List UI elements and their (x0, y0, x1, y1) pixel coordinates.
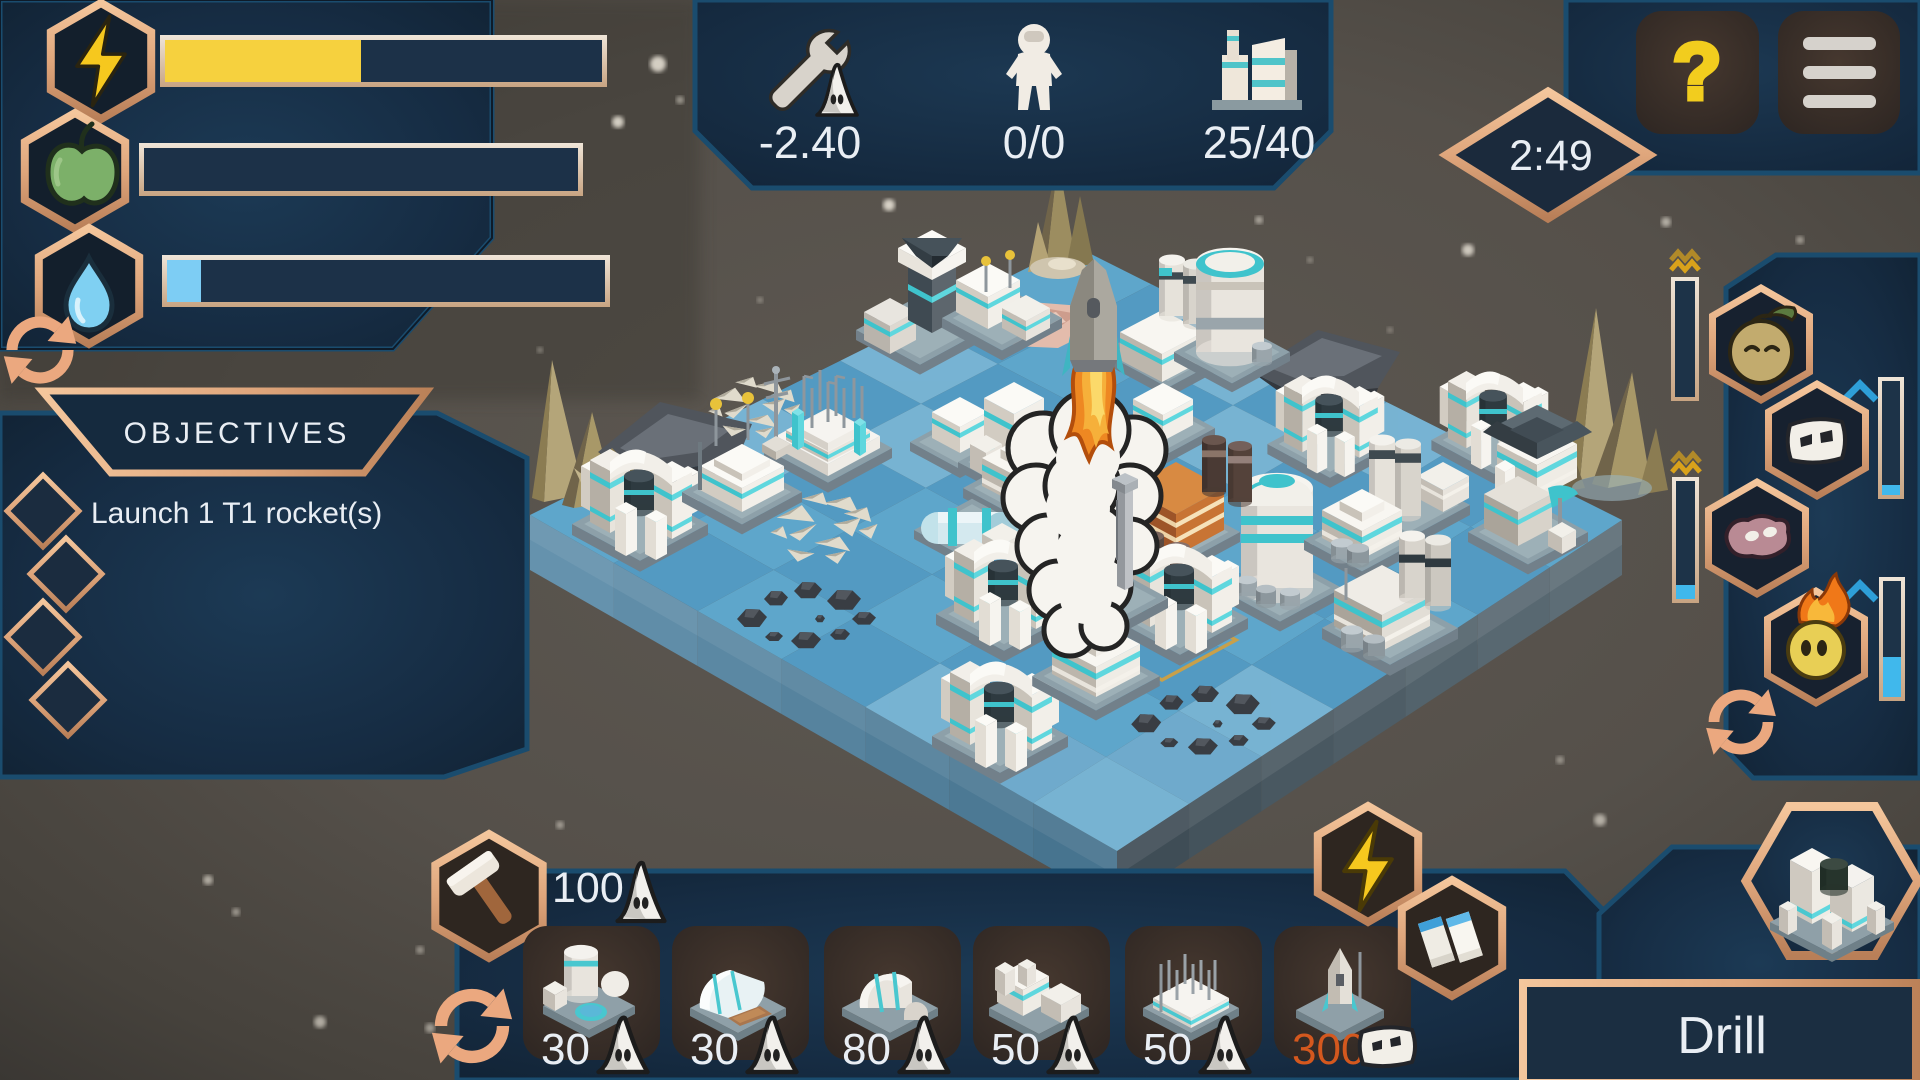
svg-text:30: 30 (690, 1025, 739, 1074)
svg-text:300: 300 (1292, 1025, 1365, 1074)
svg-text:80: 80 (842, 1025, 891, 1074)
svg-text:?: ? (1673, 27, 1722, 116)
svg-text:100: 100 (552, 864, 624, 912)
svg-text:25/40: 25/40 (1203, 117, 1316, 168)
svg-text:30: 30 (541, 1025, 590, 1074)
svg-text:OBJECTIVES: OBJECTIVES (124, 417, 351, 450)
svg-text:50: 50 (1143, 1025, 1192, 1074)
svg-text:Launch 1 T1 rocket(s): Launch 1 T1 rocket(s) (91, 497, 382, 530)
svg-text:50: 50 (991, 1025, 1040, 1074)
svg-text:2:49: 2:49 (1509, 132, 1593, 180)
svg-text:0/0: 0/0 (1003, 117, 1066, 168)
svg-text:Drill: Drill (1677, 1007, 1767, 1065)
svg-text:-2.40: -2.40 (759, 117, 862, 168)
